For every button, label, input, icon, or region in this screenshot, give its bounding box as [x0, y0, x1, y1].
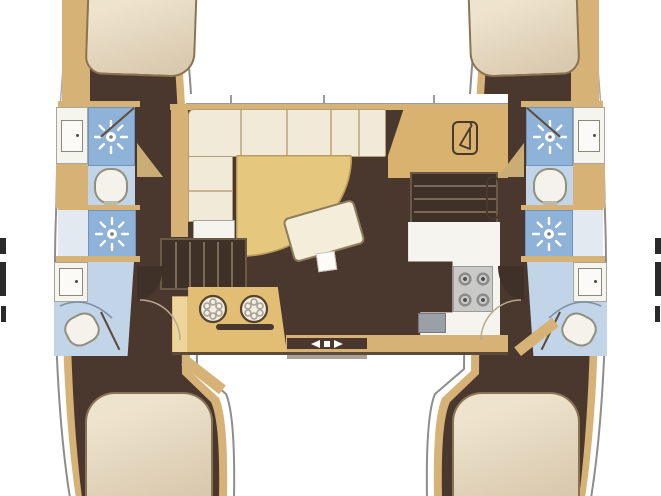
port-aft-berth	[85, 392, 213, 496]
port-companionway-stairs	[160, 238, 247, 290]
sink-drain	[594, 280, 597, 283]
stair-tread	[217, 242, 219, 288]
entry-arrow-left-icon	[311, 340, 320, 348]
stove-burner	[457, 292, 473, 308]
sink-drain	[76, 134, 79, 137]
stair-tread	[189, 242, 191, 288]
sink-drain	[593, 134, 596, 137]
stbd-fwd-head-cabinet	[573, 164, 605, 208]
port-edge-mark	[1, 306, 6, 322]
starboard-aft-berth	[452, 392, 580, 496]
nav-station-desk	[388, 109, 508, 178]
sink-drain	[75, 280, 78, 283]
hanging-locker	[452, 121, 478, 155]
port-fwd-toilet	[94, 168, 128, 204]
stbd-shower-curve	[545, 294, 605, 322]
port-edge-mark	[0, 262, 6, 296]
sofa-seam	[240, 110, 242, 156]
saloon-port-wall	[171, 104, 188, 237]
starboard-companionway-stairs	[410, 172, 498, 224]
entry-arrow-right-icon	[334, 340, 343, 348]
catamaran-floor-plan	[0, 0, 661, 496]
stbd-aft-sink	[578, 268, 602, 296]
port-forward-berth	[85, 0, 198, 78]
starboard-edge-mark	[655, 238, 661, 254]
stair-tread	[231, 242, 233, 288]
port-shower-curve	[56, 294, 116, 322]
stbd-mid-shower-bench	[573, 210, 603, 257]
galley-appliance	[418, 313, 446, 333]
sofa-seam	[358, 110, 360, 156]
sofa-seam	[189, 190, 232, 192]
port-fwd-sink	[61, 120, 83, 152]
starboard-stair-handrail	[486, 176, 500, 220]
window-mullion	[433, 95, 435, 103]
stbd-fwd-toilet	[533, 168, 567, 204]
stbd-cabin-door-swing-arc	[479, 298, 523, 342]
galley-towel-bar	[216, 324, 274, 330]
port-mid-shower-bench	[58, 210, 88, 257]
stove-burner	[475, 271, 491, 287]
sofa-seam	[286, 110, 288, 156]
stove-burner	[457, 271, 473, 287]
stair-tread	[414, 211, 496, 213]
window-mullion	[323, 95, 325, 103]
cockpit-entry-door	[287, 338, 367, 349]
stbd-fwd-sink	[578, 120, 600, 152]
table-leg-base	[316, 251, 337, 272]
port-edge-mark	[0, 238, 6, 254]
saloon-sofa-port	[188, 156, 233, 222]
port-stair-landing	[193, 220, 235, 239]
shower-sunburst-icon	[532, 217, 566, 251]
stair-tread	[175, 242, 177, 288]
entry-door-sill	[287, 355, 367, 359]
stair-tread	[203, 242, 205, 288]
hanger-icon	[454, 123, 476, 153]
starboard-forward-berth	[468, 0, 581, 78]
sofa-seam	[330, 110, 332, 156]
starboard-edge-mark	[655, 262, 661, 296]
double-round-sink-icon	[198, 294, 270, 324]
window-mullion	[230, 95, 232, 103]
starboard-edge-mark	[655, 306, 660, 322]
port-aft-sink	[59, 268, 83, 296]
port-fwd-head-cabinet	[56, 164, 88, 208]
stair-tread	[414, 185, 496, 187]
shower-sunburst-icon	[533, 120, 567, 154]
port-cabin-door-swing-arc	[138, 298, 182, 342]
entry-door-gap	[324, 341, 330, 347]
stair-tread	[414, 198, 496, 200]
shower-sunburst-icon	[95, 217, 129, 251]
